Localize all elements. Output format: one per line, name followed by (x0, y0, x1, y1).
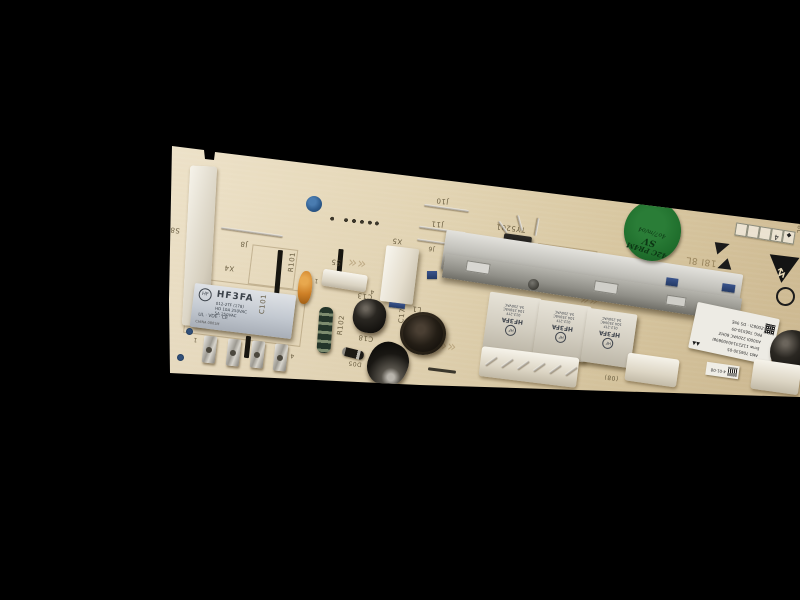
via-pad (186, 328, 193, 335)
brand-triangle-icon (717, 257, 732, 270)
relay-line4: CHINA 0801M (195, 319, 219, 326)
label-s8: S8 (170, 225, 181, 234)
label-d05: D05 (348, 359, 363, 368)
relay-box-x5 (380, 245, 420, 305)
silkscreen-chevron: «« (347, 254, 367, 274)
s5-pin1: 1 (314, 277, 319, 284)
label-j10: J10 (436, 196, 449, 205)
terminal-pin1: 1 (193, 336, 198, 343)
stamp-side-text: HW08L (795, 209, 800, 234)
barcode-text: 4·01·08 (710, 367, 726, 374)
smd-component (427, 271, 437, 279)
smd-component (722, 283, 736, 293)
smd-component (666, 277, 679, 287)
hf-logo: HF (198, 288, 212, 302)
label-j8: J8 (240, 240, 248, 249)
stamp-cell: 4 (770, 228, 784, 243)
label-x5: X5 (392, 236, 403, 245)
label-j6: J6 (428, 245, 435, 253)
label-c18: C18 (358, 333, 374, 343)
circuit-board: «« «« «« S8 J8 R101 X4 HF HF3FA 012-2TF … (0, 0, 800, 600)
toroid-inductor-l1 (400, 312, 446, 355)
photo-stage: «« «« «« S8 J8 R101 X4 HF HF3FA 012-2TF … (0, 0, 800, 600)
hf-logo: HF (602, 337, 614, 349)
lightning-bolt-icon: ↯ (775, 263, 788, 279)
barcode (727, 367, 737, 377)
qr-code (764, 323, 776, 335)
brand-triangle-icon (713, 242, 729, 256)
label-triangle-logos: ▲▲ (692, 338, 701, 347)
via-pad (177, 354, 184, 361)
bracket-screw-hole (528, 279, 539, 290)
hf-logo: HF (555, 331, 567, 343)
stamp-cell: ◆ (782, 230, 796, 245)
hf-logo: HF (505, 324, 517, 336)
label-x4: X4 (224, 263, 235, 272)
label-j11: J11 (431, 219, 444, 228)
blue-dot-component (306, 196, 322, 212)
label-s5: S5 (331, 257, 342, 266)
terminal-pin4: 4 (290, 352, 295, 359)
